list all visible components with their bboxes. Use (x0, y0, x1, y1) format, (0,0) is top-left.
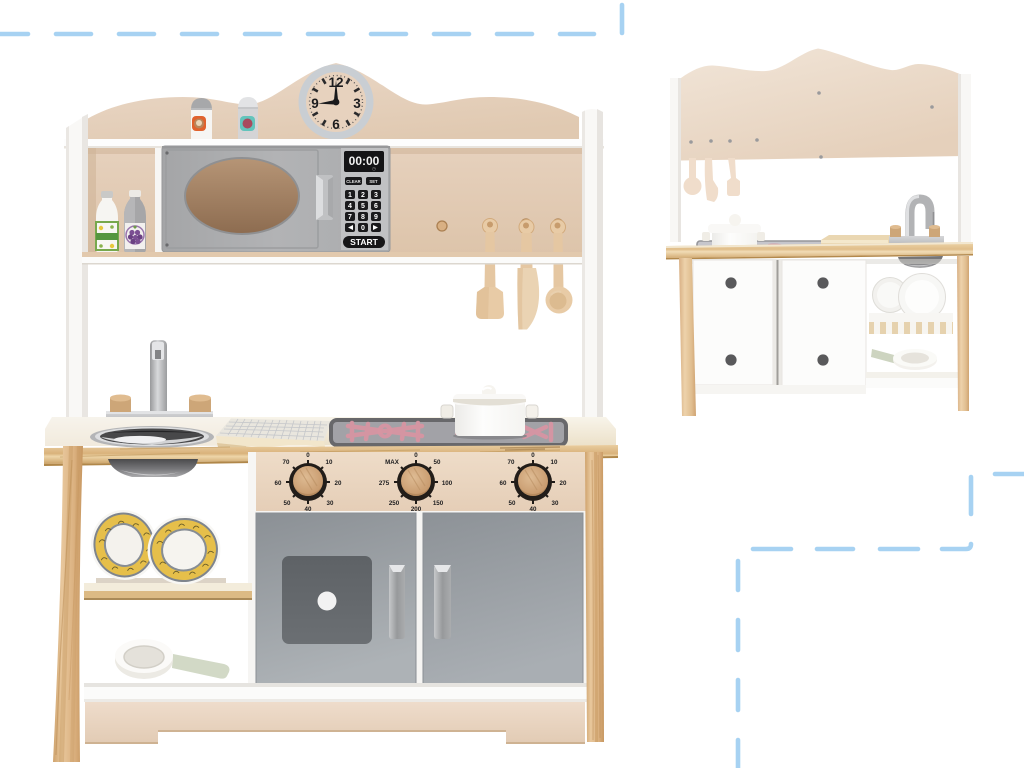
svg-text:CLEAR: CLEAR (346, 179, 360, 184)
svg-text:250: 250 (389, 500, 400, 507)
svg-text:0: 0 (531, 452, 535, 459)
svg-text:20: 20 (335, 480, 342, 487)
svg-text:275: 275 (379, 480, 390, 487)
svg-text:1: 1 (348, 192, 352, 199)
svg-text:8: 8 (361, 214, 365, 221)
svg-text:10: 10 (551, 459, 558, 466)
svg-text:3: 3 (374, 192, 378, 199)
svg-text:5: 5 (361, 203, 365, 210)
svg-text:3: 3 (353, 96, 361, 111)
svg-text:30: 30 (552, 500, 559, 507)
svg-text:2: 2 (361, 192, 365, 199)
svg-text:0: 0 (414, 452, 418, 459)
svg-text:50: 50 (434, 459, 441, 466)
svg-text:MAX: MAX (385, 459, 400, 466)
svg-text:6: 6 (332, 117, 340, 132)
svg-text:9: 9 (311, 96, 319, 111)
svg-text:4: 4 (348, 203, 352, 210)
svg-text:70: 70 (283, 459, 290, 466)
svg-text:30: 30 (327, 500, 334, 507)
svg-text:10: 10 (326, 459, 333, 466)
svg-text:9: 9 (374, 214, 378, 221)
svg-text:60: 60 (500, 480, 507, 487)
svg-text:50: 50 (284, 500, 291, 507)
svg-text:20: 20 (560, 480, 567, 487)
svg-text:START: START (350, 237, 379, 247)
svg-text:SET: SET (369, 179, 378, 184)
svg-text:0: 0 (306, 452, 310, 459)
svg-text:70: 70 (508, 459, 515, 466)
svg-text:50: 50 (509, 500, 516, 507)
svg-text:0: 0 (361, 225, 365, 232)
svg-text:6: 6 (374, 203, 378, 210)
svg-text:100: 100 (442, 480, 453, 487)
svg-text:60: 60 (275, 480, 282, 487)
svg-text:150: 150 (433, 500, 444, 507)
svg-text:7: 7 (348, 214, 352, 221)
